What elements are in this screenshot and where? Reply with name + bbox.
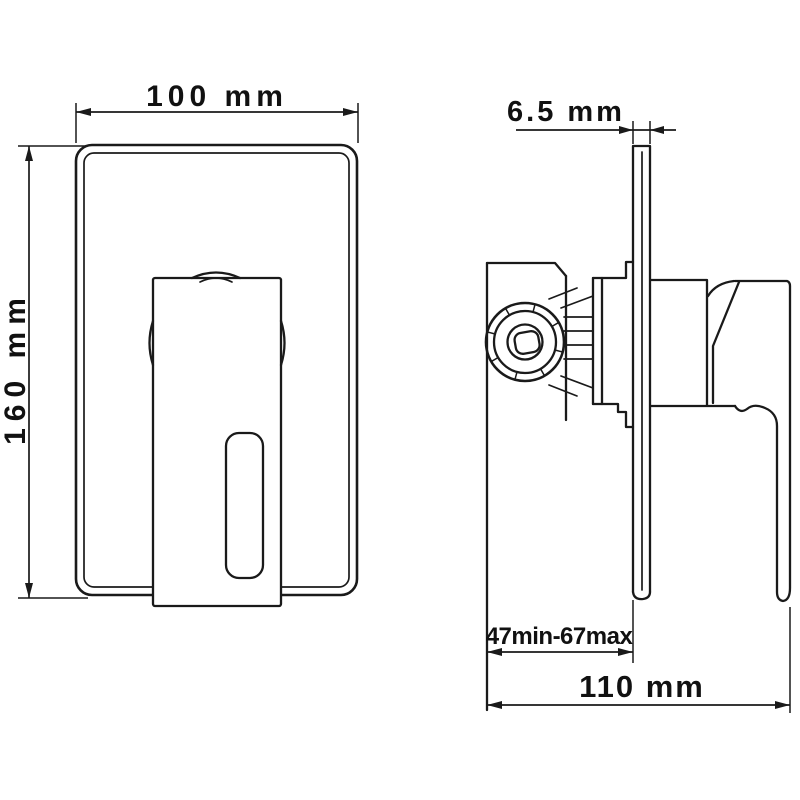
dim-depth-range-label: 47min-67max (486, 623, 634, 650)
dim-front-height-label: 160 mm (0, 291, 32, 445)
handle-base (651, 280, 735, 406)
inlet-hex-socket (513, 330, 540, 355)
plate-bottom-cap (633, 592, 650, 599)
dim-depth-range: 47min-67max (486, 600, 634, 663)
front-view: 100 mm 160 mm (0, 80, 358, 606)
cartridge (593, 262, 633, 427)
shower-valve-drawing: 100 mm 160 mm (0, 0, 800, 800)
cartridge-walls (593, 278, 602, 404)
lever-slant-seam (713, 282, 739, 403)
side-view: 6.5 mm 47min-67max 110 mm (486, 96, 790, 713)
handle-slot (226, 433, 263, 578)
arrow-right-icon (775, 701, 790, 709)
inlet-fitting (486, 288, 593, 396)
arrow-up-icon (25, 146, 33, 161)
arrow-left-icon (76, 108, 91, 116)
cartridge-bottom-step (593, 404, 633, 427)
arrow-right-icon (343, 108, 358, 116)
technical-drawing-canvas: 100 mm 160 mm (0, 0, 800, 800)
arrow-down-icon (25, 583, 33, 598)
dim-plate-thickness: 6.5 mm (507, 96, 676, 144)
valve-body-top (487, 263, 566, 276)
dim-overall-depth-label: 110 mm (579, 669, 705, 704)
lever-outline (735, 281, 790, 601)
dim-front-width: 100 mm (76, 80, 358, 143)
dim-front-width-label: 100 mm (146, 80, 288, 113)
wall-plate-side (633, 146, 650, 599)
cartridge-top-step (593, 262, 633, 278)
inlet-middle-ring (494, 311, 556, 373)
dim-thickness-extensions (633, 121, 650, 144)
handle-side (651, 280, 790, 601)
dim-plate-thickness-label: 6.5 mm (507, 96, 625, 128)
arrow-left-icon (487, 701, 502, 709)
arrow-left-icon (650, 126, 664, 134)
inlet-outer-ring (486, 303, 564, 381)
lever-arc-seam (708, 281, 734, 296)
